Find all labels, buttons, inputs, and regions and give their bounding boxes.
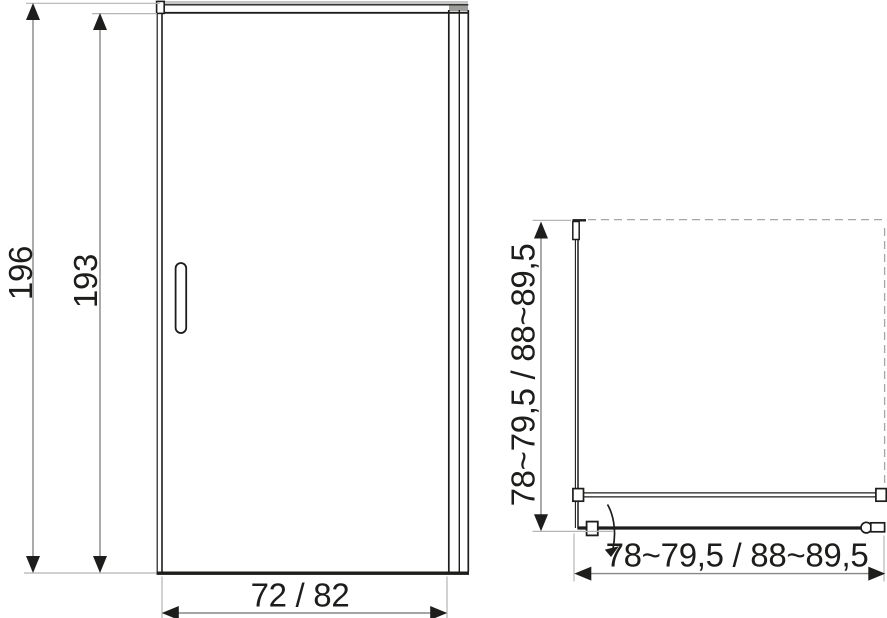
arrowhead-plan-width-left [574,567,591,581]
arrowhead-width-right [430,606,447,618]
door-end-cap-plan [871,523,885,532]
arrowhead-total-height-bottom [26,556,40,573]
arrowhead-plan-width-right [868,567,885,581]
arrowhead-width-left [162,606,179,618]
stabilizer-right-bracket [876,489,886,502]
wall-profile-body [573,222,579,240]
top-view-walls [588,220,886,489]
arrowhead-total-height-top [26,3,40,20]
drawing-svg: 196 193 72 / 82 [0,0,887,618]
arrowhead-glass-height-top [93,13,107,30]
arrowhead-depth-bottom [534,514,548,531]
top-rail-right-cap [449,6,468,12]
front-view-dimensions: 196 193 72 / 82 [2,3,447,618]
bottom-rail [157,572,470,575]
dimension-label-plan-width: 78~79,5 / 88~89,5 [606,537,869,574]
dimension-label-glass-height: 193 [67,254,104,308]
dimension-label-depth: 78~79,5 / 88~89,5 [505,244,542,507]
top-view-enclosure [573,220,887,557]
arrowhead-glass-height-bottom [93,556,107,573]
stabilizer-left-bracket [573,489,584,502]
dimension-label-total-height: 196 [2,246,39,300]
top-view: 78~79,5 / 88~89,5 78~79,5 / 88~89,5 [505,220,887,582]
shower-door-technical-drawing: 196 193 72 / 82 [0,0,887,618]
top-rail-strip [157,1,468,4]
dimension-label-width: 72 / 82 [251,577,350,614]
hinge-block [587,522,598,536]
arrowhead-depth-top [534,222,548,239]
front-view: 196 193 72 / 82 [2,1,469,618]
door-handle [176,263,187,333]
front-view-door-unit [157,1,470,575]
